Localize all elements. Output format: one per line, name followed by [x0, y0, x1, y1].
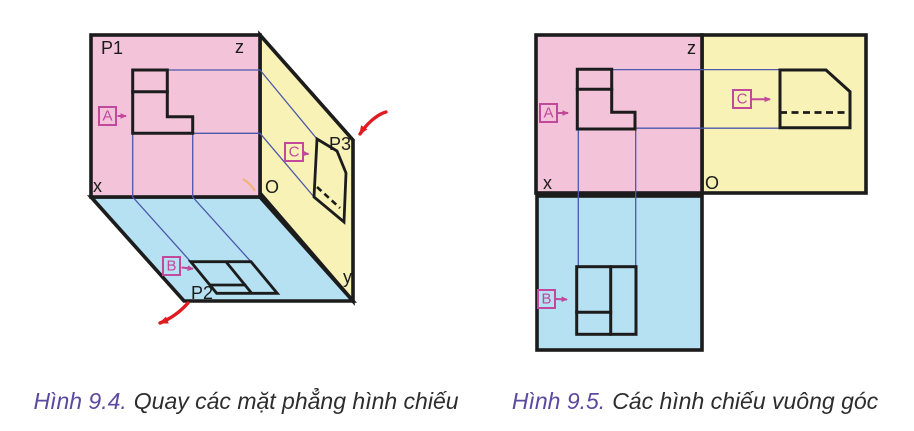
figure-9-5-caption: Hình 9.5.Các hình chiếu vuông góc [494, 388, 896, 415]
projection-diagrams: A B C P1 P2 P3 z x y O [0, 0, 914, 431]
label-a: A [543, 105, 553, 122]
figure-title: Các hình chiếu vuông góc [612, 388, 878, 414]
axis-label-z: z [235, 37, 244, 57]
axis-label-y: y [343, 267, 352, 287]
figure-9-5-diagram: A C B z x O [536, 35, 866, 350]
figure-9-4-caption: Hình 9.4.Quay các mặt phẳng hình chiếu [28, 388, 464, 415]
figure-number: Hình 9.5. [512, 388, 605, 414]
figure-number: Hình 9.4. [33, 388, 126, 414]
axis-label-z: z [687, 38, 696, 58]
label-b-arrow [182, 268, 194, 269]
label-b-arrow [556, 299, 567, 300]
axis-label-x: x [93, 176, 102, 196]
origin-label: O [705, 173, 719, 193]
label-c: C [289, 144, 300, 161]
profile-plane-unfolded [702, 35, 866, 193]
figure-9-4-diagram: A B C P1 P2 P3 z x y O [91, 35, 386, 323]
origin-label: O [265, 177, 279, 197]
label-c-arrow [304, 154, 309, 155]
figure-title: Quay các mặt phẳng hình chiếu [134, 388, 459, 414]
rotation-arrow-p3 [360, 112, 386, 134]
textbook-figure-panel: A B C P1 P2 P3 z x y O [0, 0, 914, 431]
horizontal-plane-unfolded [537, 196, 702, 350]
plane-label-p2: P2 [191, 283, 213, 303]
label-b: B [541, 291, 551, 308]
axis-label-x: x [543, 173, 552, 193]
label-b: B [166, 258, 176, 275]
plane-label-p3: P3 [329, 134, 351, 154]
rotation-arrow-p2 [160, 303, 188, 323]
label-c: C [737, 91, 748, 108]
label-a: A [102, 108, 112, 125]
plane-label-p1: P1 [101, 38, 123, 58]
